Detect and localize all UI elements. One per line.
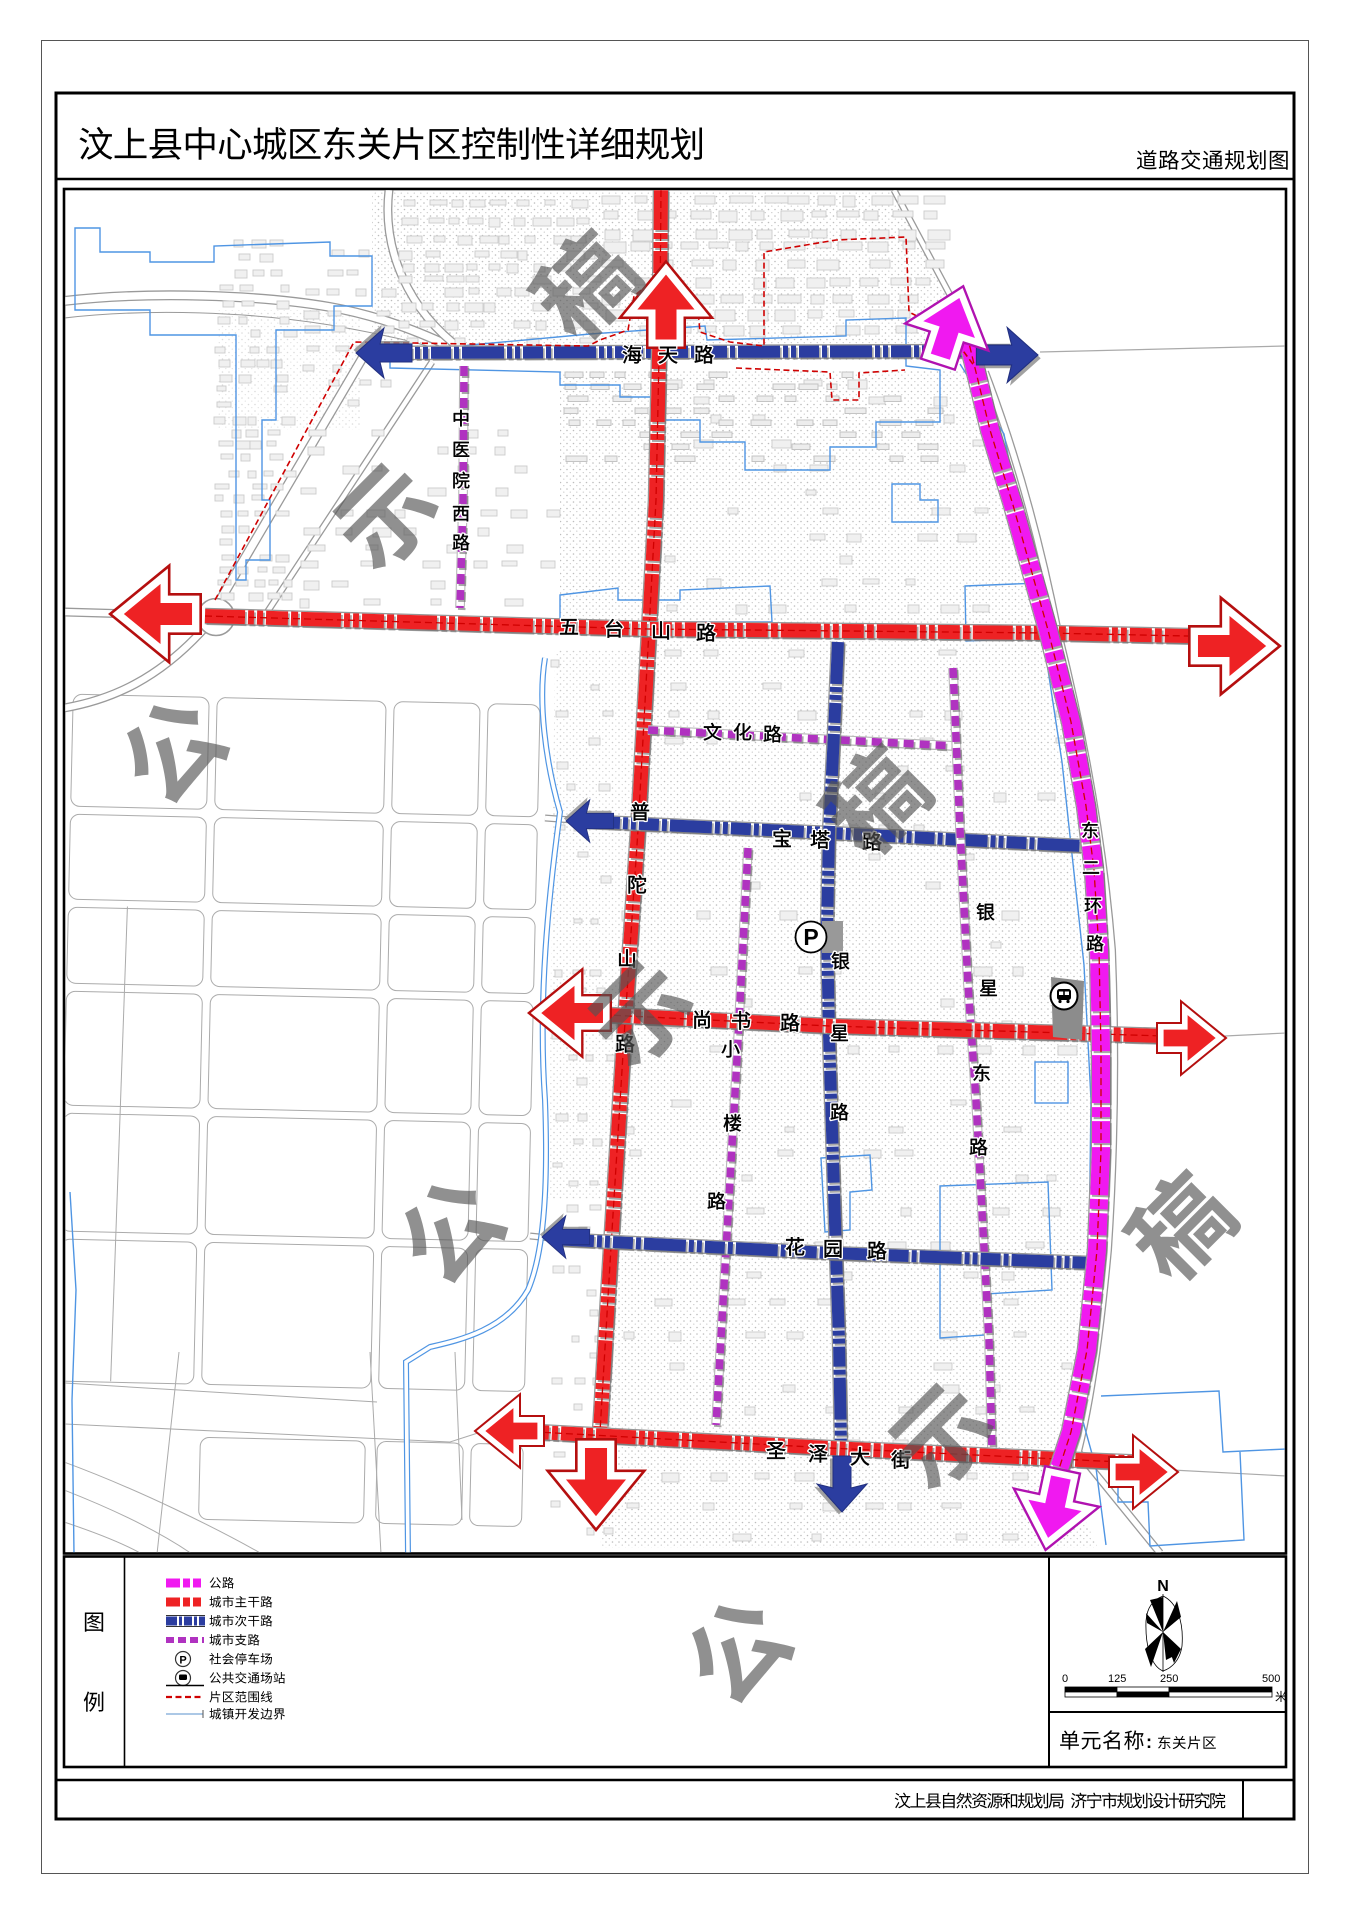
svg-text:125: 125 (1108, 1673, 1126, 1685)
svg-text:250: 250 (1160, 1673, 1178, 1685)
svg-text:0: 0 (1062, 1673, 1068, 1685)
svg-text::: : (1146, 1732, 1152, 1752)
svg-text:500: 500 (1262, 1673, 1280, 1685)
svg-text:P: P (803, 924, 818, 950)
svg-text:N: N (1157, 1578, 1169, 1595)
svg-text:P: P (179, 1655, 186, 1667)
